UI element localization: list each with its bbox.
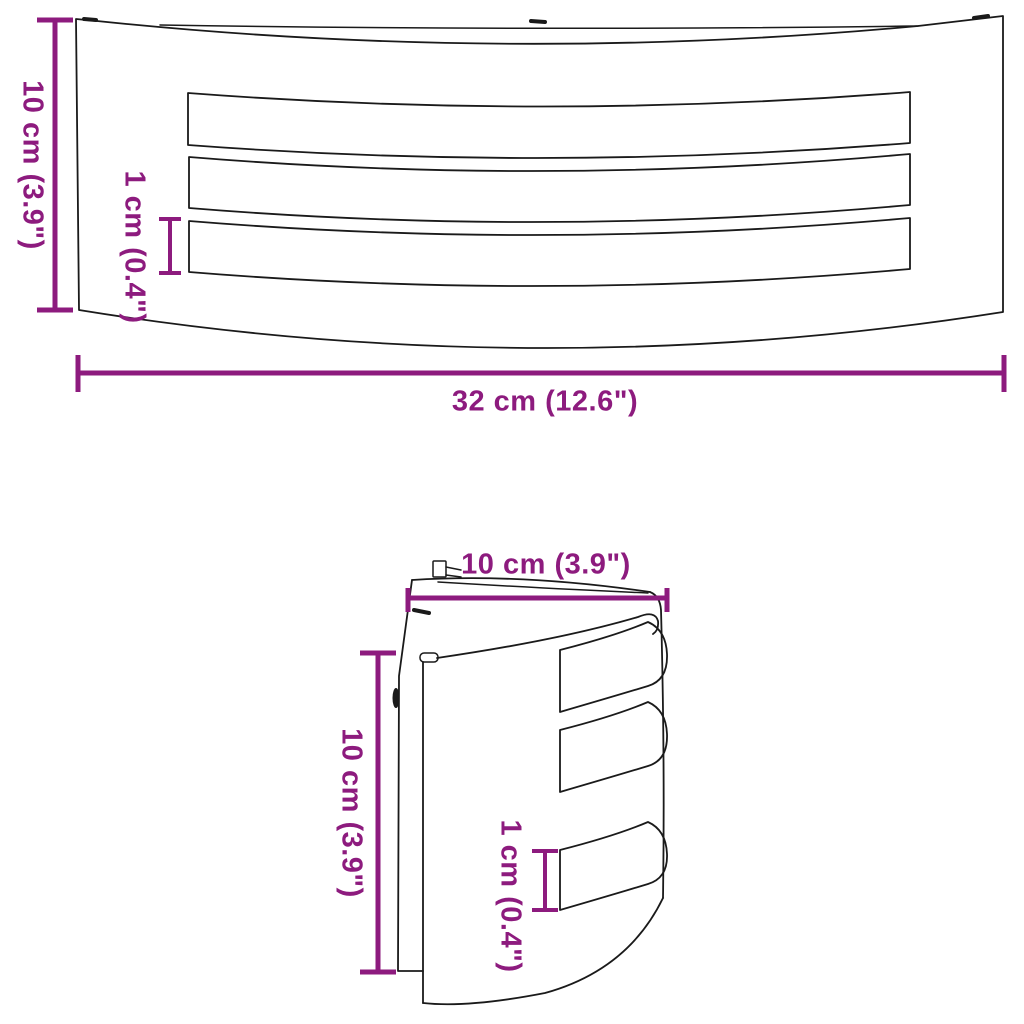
side-view-depth-dimension: 10 cm (3.9") xyxy=(408,549,667,612)
front-view-body-outline xyxy=(76,16,1003,348)
side-view-height-dimension: 10 cm (3.9") xyxy=(335,653,396,972)
top-screw-head xyxy=(433,561,446,577)
diagram-canvas: 10 cm (3.9") 1 cm (0.4") 32 cm (12.6") xyxy=(0,0,1024,1024)
screw-mark-center xyxy=(531,21,545,22)
screw-mark-left xyxy=(84,19,96,20)
side-view-slot-dimension: 1 cm (0.4") xyxy=(494,819,558,972)
front-width-dimension-label: 32 cm (12.6") xyxy=(452,386,638,418)
side-view-bottom-sweep xyxy=(423,898,663,1004)
front-view-height-dimension: 10 cm (3.9") xyxy=(16,20,73,310)
side-slot-dimension-label: 1 cm (0.4") xyxy=(494,819,526,972)
side-view-slot-3 xyxy=(560,822,667,910)
side-view-wall-plate xyxy=(398,580,423,971)
side-depth-dimension-label: 10 cm (3.9") xyxy=(461,549,631,581)
side-view xyxy=(393,561,668,1004)
front-view-width-dimension: 32 cm (12.6") xyxy=(78,355,1004,418)
side-view-slot-1 xyxy=(560,622,667,712)
front-view-slot-3 xyxy=(189,218,910,286)
front-slot-dimension-label: 1 cm (0.4") xyxy=(118,170,150,323)
side-view-slot-2 xyxy=(560,702,667,792)
side-slot-dimension-line xyxy=(532,851,558,910)
plate-top-dash xyxy=(414,610,429,613)
top-screw-shank xyxy=(446,567,461,577)
side-view-right-edge xyxy=(650,592,664,898)
front-view xyxy=(76,16,1003,348)
wall-plate-screw-mark xyxy=(393,688,400,708)
front-view-slot-1 xyxy=(188,92,910,158)
side-height-dimension-label: 10 cm (3.9") xyxy=(335,728,367,898)
product-dimension-diagram: 10 cm (3.9") 1 cm (0.4") 32 cm (12.6") xyxy=(0,0,1024,1024)
front-view-back-rim-line xyxy=(160,25,918,28)
front-view-slot-dimension: 1 cm (0.4") xyxy=(118,170,181,323)
front-height-dimension-label: 10 cm (3.9") xyxy=(16,80,48,250)
front-slot-dimension-line xyxy=(159,219,181,273)
screw-mark-right xyxy=(974,16,988,18)
front-view-slot-2 xyxy=(189,154,910,222)
front-rim-clip xyxy=(420,653,438,662)
side-view-front-rim xyxy=(437,614,658,658)
